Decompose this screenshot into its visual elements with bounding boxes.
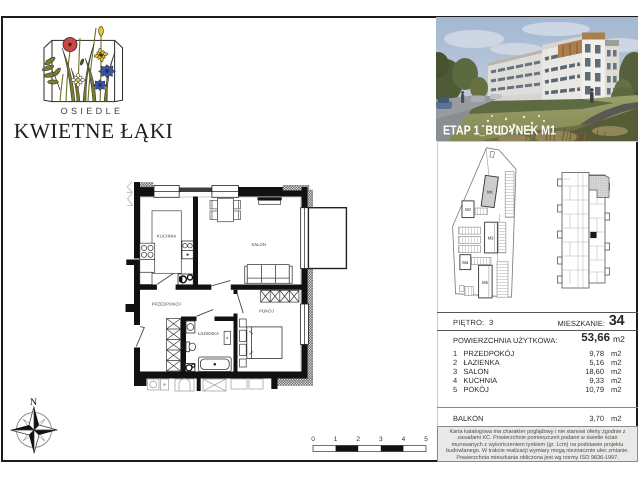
svg-text:N: N [30, 397, 37, 408]
svg-text:4: 4 [402, 436, 406, 443]
svg-text:M3: M3 [488, 236, 494, 241]
svg-text:SALON: SALON [251, 242, 266, 247]
svg-text:KUCHNIA: KUCHNIA [157, 234, 177, 239]
svg-text:POKÓJ: POKÓJ [259, 308, 274, 313]
svg-text:PRZEDPOKÓJ: PRZEDPOKÓJ [152, 302, 181, 307]
svg-text:3: 3 [379, 436, 383, 443]
svg-text:5: 5 [424, 436, 428, 443]
svg-text:ŁAZIENKA: ŁAZIENKA [198, 331, 219, 336]
svg-text:M5: M5 [482, 280, 488, 285]
svg-text:1: 1 [334, 436, 338, 443]
svg-text:M2: M2 [465, 207, 471, 212]
svg-text:ETAP 1_BUDYNEK M1: ETAP 1_BUDYNEK M1 [443, 123, 556, 138]
svg-text:M1: M1 [487, 190, 493, 195]
svg-text:2: 2 [356, 436, 360, 443]
svg-text:0: 0 [311, 436, 315, 443]
svg-text:M4: M4 [462, 260, 468, 265]
